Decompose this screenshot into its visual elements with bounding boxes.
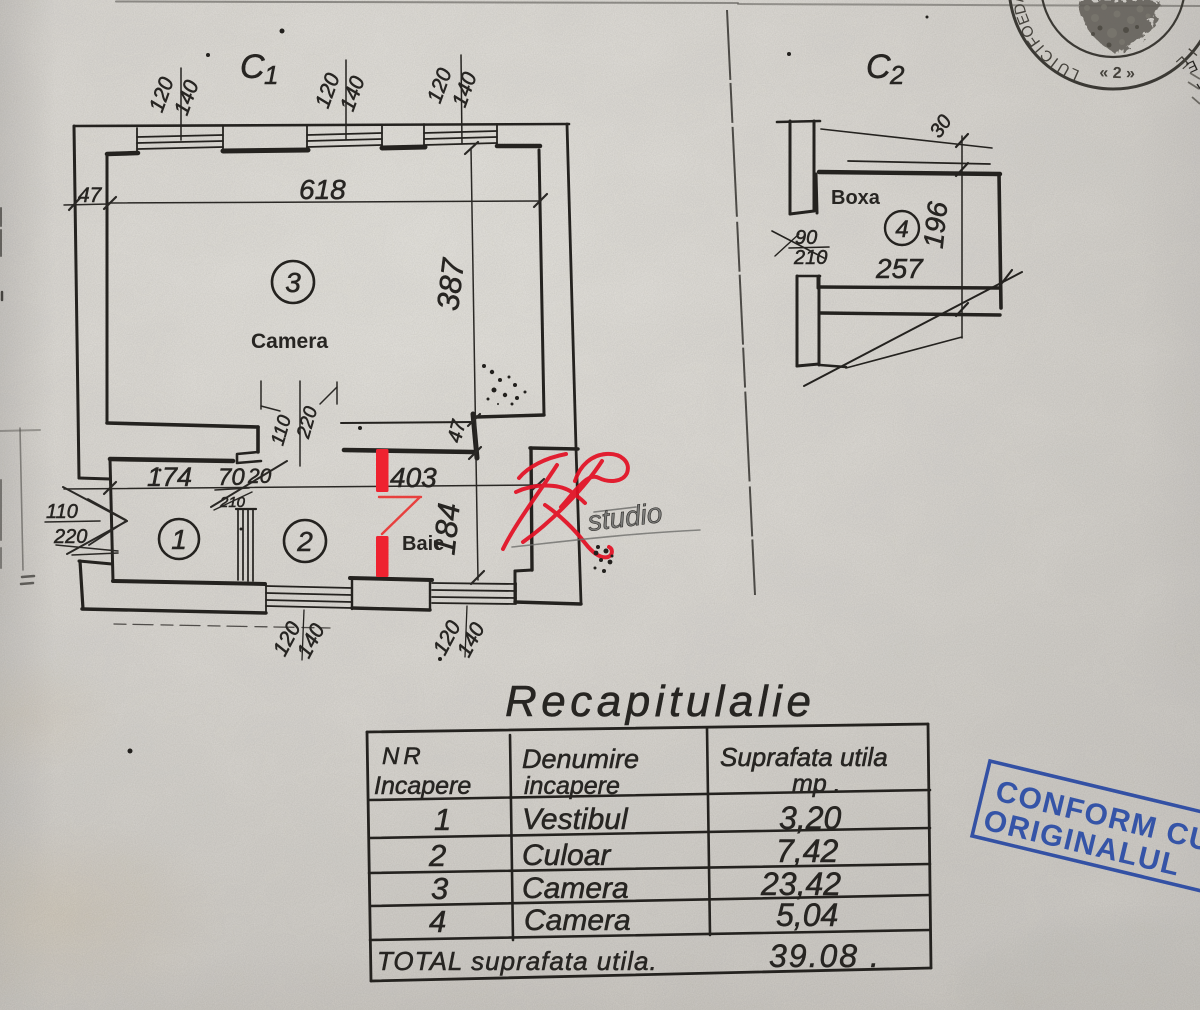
svg-text:210: 210: [793, 247, 827, 269]
svg-text:incapere: incapere: [524, 772, 620, 800]
svg-text:Incapere: Incapere: [374, 772, 471, 800]
svg-text:3: 3: [285, 267, 301, 298]
svg-text:403: 403: [390, 462, 437, 493]
svg-text:618: 618: [299, 174, 346, 205]
svg-text:47: 47: [78, 184, 103, 207]
svg-text:Boxa: Boxa: [831, 187, 881, 209]
svg-text:2: 2: [296, 526, 313, 557]
svg-text:3,20: 3,20: [779, 800, 841, 836]
svg-text:387: 387: [430, 255, 471, 312]
svg-text:C: C: [240, 48, 265, 86]
svg-text:C: C: [866, 48, 891, 86]
svg-text:Camera: Camera: [524, 904, 631, 937]
svg-text:220: 220: [53, 526, 87, 548]
svg-text:TOTAL suprafata utila.: TOTAL suprafata utila.: [377, 946, 658, 976]
svg-text:4: 4: [429, 904, 446, 939]
svg-text:« 2 »: « 2 »: [1099, 64, 1135, 82]
svg-text:39.08 .: 39.08 .: [769, 938, 881, 974]
svg-text:Culoar: Culoar: [522, 839, 611, 872]
svg-text:1: 1: [264, 60, 278, 90]
svg-text:Vestibul: Vestibul: [522, 803, 629, 836]
svg-text:210: 210: [219, 494, 246, 511]
svg-text:90: 90: [795, 227, 817, 249]
svg-text:3: 3: [431, 871, 448, 906]
svg-text:110: 110: [46, 501, 78, 523]
svg-text:Suprafata utila: Suprafata utila: [720, 742, 888, 772]
svg-text:2: 2: [889, 60, 905, 90]
svg-text:NR: NR: [382, 743, 425, 770]
svg-text:174: 174: [147, 462, 192, 492]
svg-text:Camera: Camera: [522, 872, 629, 905]
svg-text:7,42: 7,42: [776, 833, 838, 869]
svg-text:Recapitulalie: Recapitulalie: [505, 677, 815, 726]
svg-text:1: 1: [434, 802, 451, 837]
svg-text:184: 184: [426, 501, 466, 556]
svg-text:2: 2: [428, 838, 446, 873]
svg-text:mp .: mp .: [792, 770, 841, 798]
svg-text:1: 1: [171, 524, 187, 555]
svg-text:Camera: Camera: [251, 330, 328, 353]
svg-text:257: 257: [875, 253, 924, 284]
svg-text:196: 196: [918, 200, 954, 250]
svg-text:4: 4: [895, 216, 908, 243]
svg-text:70: 70: [218, 464, 245, 491]
svg-text:20: 20: [247, 465, 272, 488]
svg-text:5,04: 5,04: [776, 897, 838, 933]
svg-text:Denumire: Denumire: [522, 744, 639, 774]
